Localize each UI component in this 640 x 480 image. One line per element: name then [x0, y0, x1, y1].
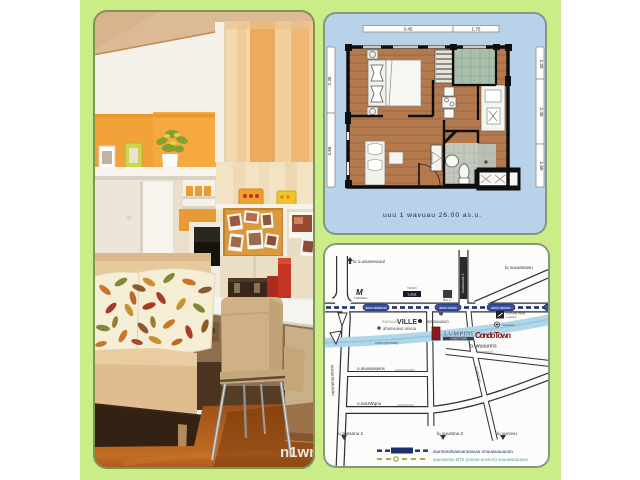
svg-text:aonu wwsinuu: aonu wwsinuu — [366, 306, 387, 310]
svg-text:2.65: 2.65 — [327, 146, 332, 155]
svg-text:o.naUWqnu: o.naUWqnu — [357, 401, 382, 406]
svg-text:uuu 1 wavuau 26.00 as.u.: uuu 1 wavuau 26.00 as.u. — [383, 212, 481, 219]
svg-text:1.20: 1.20 — [539, 60, 544, 69]
svg-text:CONDOTOWN: CONDOTOWN — [450, 338, 467, 341]
svg-text:1.60: 1.60 — [539, 162, 544, 171]
svg-text:aonu naooav: aonu naooav — [491, 306, 510, 310]
svg-text:uununvuno: uununvuno — [397, 403, 414, 407]
svg-text:CondoTown: CondoTown — [475, 331, 511, 340]
svg-text:aouoovonu BTS (onnau-unvnon) o: aouoovonu BTS (onnau-unvnon) onuuwuuuuuo… — [433, 457, 529, 462]
svg-text:uunuwuoulnu: uunuwuoulnu — [395, 368, 415, 372]
svg-text:naavnpérilasty: naavnpérilasty — [375, 341, 398, 345]
svg-text:(anowsno): (anowsno) — [477, 350, 493, 354]
svg-text:o.wsnun: o.wsnun — [506, 315, 517, 319]
svg-text:lu oussanu 2: lu oussanu 2 — [337, 431, 363, 436]
svg-text:VILLE: VILLE — [397, 319, 417, 326]
svg-text:Lotus: Lotus — [408, 293, 417, 297]
svg-text:1.75: 1.75 — [472, 27, 481, 32]
svg-text:3.45: 3.45 — [404, 27, 413, 32]
svg-text:lu o.usussvouul: lu o.usussvouul — [353, 259, 385, 264]
svg-text:TESCO: TESCO — [407, 286, 417, 290]
svg-text:2.40: 2.40 — [539, 108, 544, 117]
svg-text:THE MALL: THE MALL — [354, 296, 368, 300]
svg-text:n1wn: n1wn — [280, 444, 315, 461]
svg-text:BIG C: BIG C — [443, 298, 451, 302]
svg-text:inaouauuvo: inaouauuvo — [427, 319, 449, 324]
svg-text:lu ouuwssasu: lu ouuwssasu — [505, 265, 533, 270]
svg-text:iaunsosolwwnaneauviu onuuwuuuu: iaunsosolwwnaneauviu onuuwuuuuuon — [433, 449, 513, 454]
svg-text:2.35: 2.35 — [327, 76, 332, 85]
svg-text:LUMPINI: LUMPINI — [444, 331, 473, 338]
svg-text:Carrefour: Carrefour — [502, 323, 515, 327]
svg-text:SUPALAI: SUPALAI — [382, 320, 398, 324]
svg-text:aonu unvun: aonu unvun — [439, 306, 456, 310]
svg-text:ahunvuuvo unvuu: ahunvuuvo unvuu — [383, 326, 417, 331]
svg-text:o.inuasuswns: o.inuasuswns — [357, 366, 386, 371]
svg-text:o. wuuunns: o. wuuunns — [470, 344, 497, 350]
svg-text:ouuunvuon 1: ouuunvuon 1 — [461, 273, 465, 293]
svg-text:lu ounovu: lu ounovu — [497, 431, 517, 436]
